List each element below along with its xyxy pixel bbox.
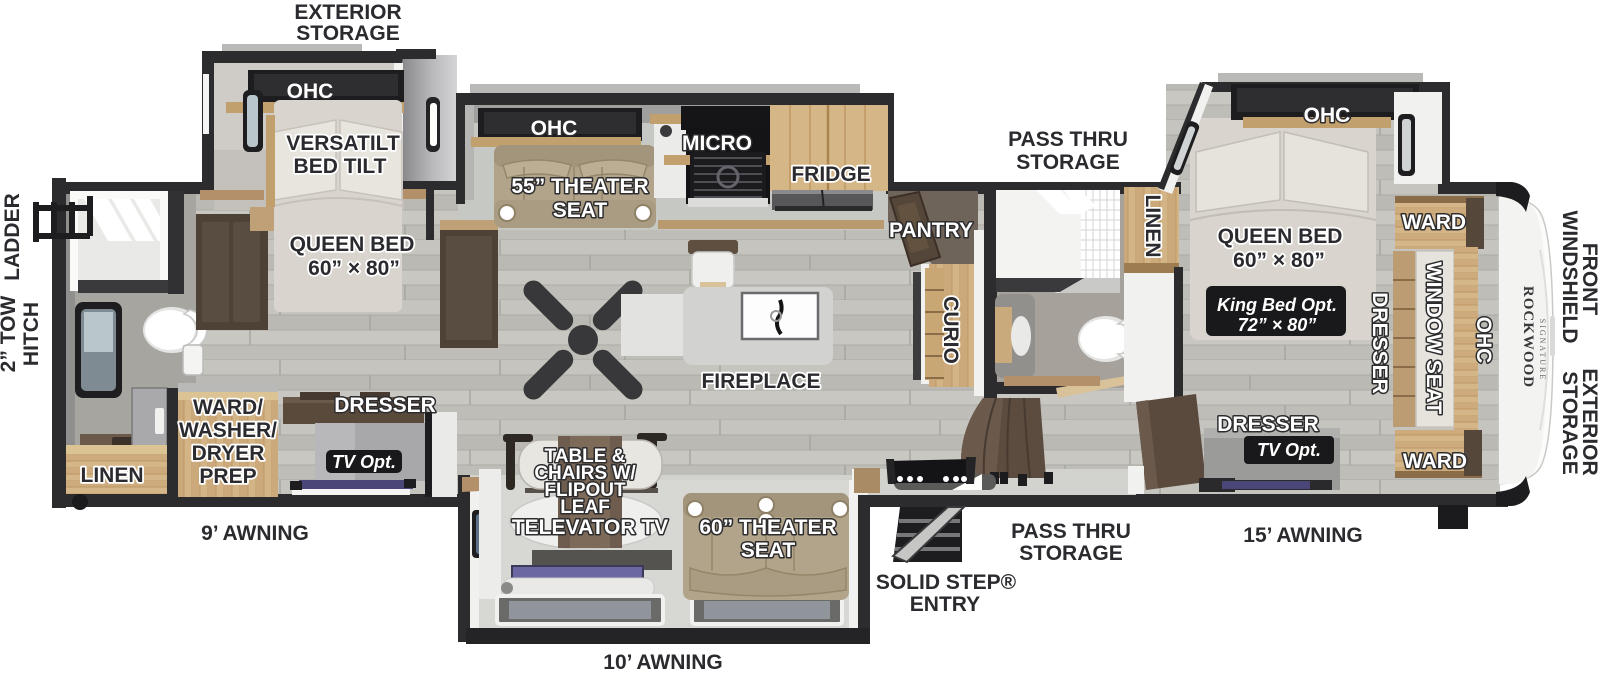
svg-text:TV Opt.: TV Opt.: [332, 452, 396, 472]
svg-text:DRESSER: DRESSER: [334, 394, 436, 417]
svg-text:WARD: WARD: [1403, 450, 1467, 473]
svg-text:SIGNATURE: SIGNATURE: [1538, 319, 1547, 381]
svg-text:STORAGE: STORAGE: [1016, 151, 1119, 174]
svg-text:OHC: OHC: [287, 80, 334, 103]
svg-text:PASS THRU: PASS THRU: [1008, 128, 1128, 151]
svg-text:60” × 80”: 60” × 80”: [308, 257, 400, 280]
svg-text:BED TILT: BED TILT: [294, 155, 387, 178]
svg-text:STORAGE: STORAGE: [296, 22, 399, 45]
svg-text:TELEVATOR TV: TELEVATOR TV: [512, 516, 668, 539]
svg-text:King Bed Opt.: King Bed Opt.: [1217, 295, 1337, 315]
svg-text:WARD/: WARD/: [193, 396, 263, 419]
svg-text:9’ AWNING: 9’ AWNING: [201, 522, 309, 545]
svg-text:EXTERIOR: EXTERIOR: [294, 1, 401, 24]
svg-text:LADDER: LADDER: [1, 193, 24, 281]
svg-text:10’ AWNING: 10’ AWNING: [603, 651, 722, 673]
svg-text:QUEEN BED: QUEEN BED: [1218, 225, 1343, 248]
svg-text:OHC: OHC: [1304, 104, 1351, 127]
svg-text:PANTRY: PANTRY: [889, 219, 973, 242]
svg-text:PREP: PREP: [199, 465, 256, 488]
svg-text:CURIO: CURIO: [939, 296, 962, 364]
svg-text:15’ AWNING: 15’ AWNING: [1243, 524, 1362, 547]
svg-text:DRESSER: DRESSER: [1368, 292, 1391, 394]
svg-text:60” × 80”: 60” × 80”: [1233, 249, 1325, 272]
svg-text:WASHER/: WASHER/: [179, 419, 277, 442]
svg-text:PASS THRU: PASS THRU: [1011, 520, 1131, 543]
svg-text:WINDSHIELD: WINDSHIELD: [1558, 211, 1581, 344]
svg-text:HITCH: HITCH: [20, 302, 43, 366]
svg-text:FRIDGE: FRIDGE: [791, 163, 870, 186]
svg-text:LEAF: LEAF: [560, 497, 610, 518]
svg-text:ENTRY: ENTRY: [910, 593, 980, 616]
svg-text:60” THEATER: 60” THEATER: [699, 516, 836, 539]
svg-text:LINEN: LINEN: [1141, 195, 1164, 258]
svg-text:DRYER: DRYER: [192, 442, 265, 465]
svg-text:STORAGE: STORAGE: [1019, 542, 1122, 565]
svg-text:QUEEN BED: QUEEN BED: [290, 233, 415, 256]
svg-text:SOLID STEP®: SOLID STEP®: [876, 571, 1017, 594]
svg-text:DRESSER: DRESSER: [1217, 413, 1319, 436]
svg-text:FIREPLACE: FIREPLACE: [701, 370, 820, 393]
svg-text:55” THEATER: 55” THEATER: [511, 175, 648, 198]
svg-text:ROCKWOOD: ROCKWOOD: [1520, 286, 1536, 388]
svg-text:2” TOW: 2” TOW: [0, 296, 20, 373]
svg-text:72” × 80”: 72” × 80”: [1238, 315, 1317, 335]
svg-text:TV Opt.: TV Opt.: [1257, 440, 1321, 460]
svg-text:LINEN: LINEN: [81, 464, 144, 487]
svg-text:WARD: WARD: [1402, 211, 1466, 234]
svg-text:OHC: OHC: [1472, 317, 1495, 364]
svg-text:WINDOW SEAT: WINDOW SEAT: [1422, 262, 1445, 415]
svg-text:SEAT: SEAT: [553, 199, 608, 222]
svg-text:VERSATILT: VERSATILT: [286, 132, 400, 155]
svg-text:MICRO: MICRO: [682, 132, 752, 155]
svg-text:SEAT: SEAT: [741, 539, 796, 562]
svg-text:OHC: OHC: [531, 117, 578, 140]
svg-text:STORAGE: STORAGE: [1558, 371, 1581, 474]
